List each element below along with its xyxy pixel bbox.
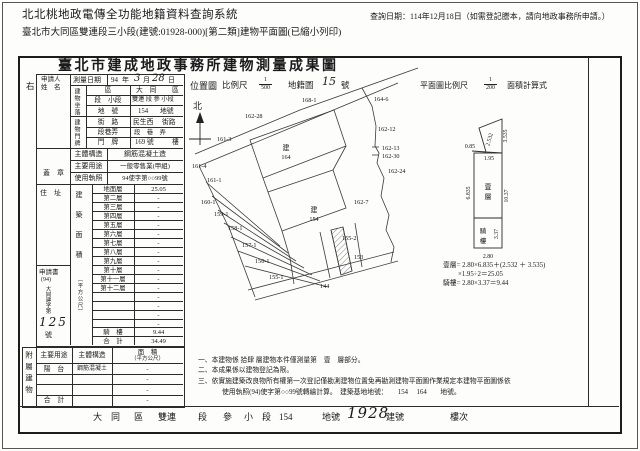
plan-dim-280: 2.80: [483, 254, 493, 260]
north-arrow-icon: [189, 112, 211, 145]
map-parcel-label: 161-1: [207, 177, 221, 184]
map-parcel-label: 144: [320, 283, 329, 290]
map-parcel-label: 153: [354, 254, 363, 261]
map-parcel-label: 161-3: [217, 136, 231, 143]
map-parcel-label: 162-13: [382, 145, 400, 152]
footer-building-suffix: 建號: [386, 412, 404, 422]
map-parcel-label: 162-12: [378, 126, 396, 133]
map-parcel-label: 155-2: [342, 235, 356, 242]
map-parcel-label: 162-28: [245, 113, 263, 120]
building-154-number: 154: [309, 216, 318, 223]
area-formula-line1: 壹層= 2.80×6.835＋(2.532 ＋ 3.535): [443, 262, 545, 270]
plan-dimensions: 0.85 1.95 2.532 3.535 6.835 10.37 3.37 2…: [465, 129, 510, 260]
plan-arcade-label: 騎: [480, 226, 487, 235]
map-parcel-label: 162-24: [388, 168, 406, 175]
map-parcel-label: 162-30: [382, 153, 400, 160]
map-parcel-label: 157-1: [242, 242, 256, 249]
map-parcel-labels: 168-1 164-6 162-28 161-3 162-12 162-13 1…: [192, 96, 406, 290]
plan-arcade-label: 樓: [480, 236, 487, 245]
note-2: 二、本成果係以建物登記為限。: [198, 367, 293, 375]
plan-dim-337: 3.37: [494, 229, 500, 239]
plan-dim-3535: 3.535: [503, 129, 509, 142]
plan-dim-6835: 6.835: [466, 186, 472, 199]
footer-subsection-suffix: 小 段: [244, 412, 271, 422]
map-parcel-label: 168-1: [302, 97, 316, 104]
footer-floor-suffix: 樓次: [450, 412, 468, 422]
map-parcel-label: 155-1: [269, 274, 283, 281]
map-parcel-label: 159-1: [214, 211, 228, 218]
footer-parcel: 154: [279, 412, 293, 422]
note-3-continued: 使用執照(94)使字第○○99號轉繪計算。 建築基地地號： 154 164 地號…: [222, 389, 461, 397]
map-parcel-label: 160-1: [201, 199, 215, 206]
map-parcel-label: 162-7: [354, 199, 368, 206]
map-parcel-label: 156-1: [255, 258, 269, 265]
plan-dim-085: 0.85: [465, 144, 475, 150]
query-system-page: 北北桃地政電傳全功能地籍資料查詢系統 查詢日期：114年12月18日（如需登記謄…: [0, 0, 640, 451]
footer-subsection: 參: [223, 412, 232, 422]
plan-dim-195: 1.95: [484, 156, 494, 162]
footer-building-number: 1928: [347, 405, 389, 422]
area-formula-line3: 騎樓= 2.80×3.37＝9.44: [443, 280, 508, 288]
plan-dim-1037: 10.37: [504, 189, 510, 202]
area-formula-line2: ×1.95÷2＝25.05: [458, 271, 503, 279]
footer-section: 雙連: [158, 412, 176, 422]
plan-floor-label: 層: [485, 193, 492, 201]
footer-section-suffix: 段: [198, 412, 207, 422]
plan-floor-label: 壹: [485, 182, 492, 191]
footer-parcel-suffix: 地號: [322, 412, 340, 422]
note-1: 一、本建物係 拾肆 層建物本件僅測量第 壹 層部分。: [198, 357, 365, 365]
plan-dim-2532: 2.532: [485, 132, 495, 146]
footer-district-suffix: 區: [134, 412, 143, 422]
map-parcel-label: 161-4: [192, 163, 206, 170]
note-3: 三、依實施建築改良物所有權第一次登記僅勘測建物位置免再勘測建物平面圖作業規定本建…: [198, 378, 511, 386]
building-164-prefix: 建: [283, 143, 290, 152]
map-parcel-label: 158-1: [228, 225, 242, 232]
building-164-number: 164: [281, 154, 290, 161]
footer-district: 大 同: [93, 412, 120, 422]
building-154-prefix: 建: [311, 205, 318, 214]
map-parcel-label: 164-6: [374, 96, 388, 103]
